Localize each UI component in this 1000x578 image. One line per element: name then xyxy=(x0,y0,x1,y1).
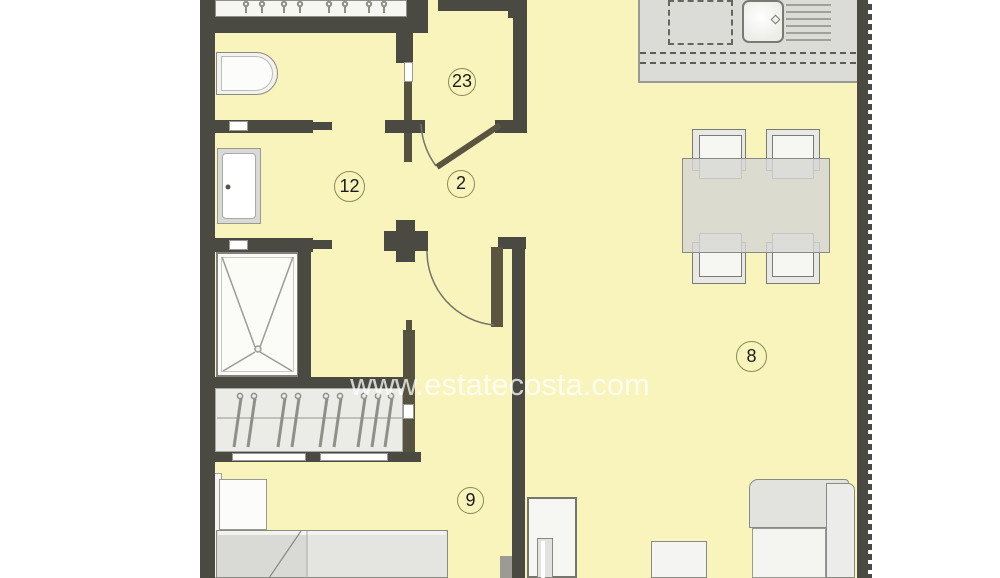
room-number: 12 xyxy=(339,177,359,195)
tall-cabinet-highlight xyxy=(541,541,545,578)
sofa-chaise xyxy=(826,483,855,578)
wall-right xyxy=(857,0,872,578)
floor-plan: 23 12 2 8 9 www.estatecosta.com xyxy=(0,0,1000,578)
wall-cross-vertical xyxy=(396,220,415,262)
bed-blanket xyxy=(307,533,447,577)
wall-kitchen-left xyxy=(513,0,527,133)
door-jamb-bedroom-sliding xyxy=(403,404,414,419)
wardrobe-top xyxy=(215,0,407,17)
counter-edge-dashed-1 xyxy=(640,52,856,54)
sofa-seat xyxy=(752,528,826,578)
room-number: 2 xyxy=(456,174,466,192)
side-table xyxy=(651,541,707,578)
watermark-text: www.estatecosta.com xyxy=(320,367,680,403)
door-jamb-dressing-bottom xyxy=(229,240,248,250)
bed-sheet-strip xyxy=(218,531,446,535)
room-label-8: 8 xyxy=(736,341,767,372)
wall-dressing-bottom-tail xyxy=(313,240,332,249)
bathtub-rim xyxy=(221,56,273,91)
closet-opening-left xyxy=(232,453,306,461)
room-label-23: 23 xyxy=(448,68,476,96)
room-number: 23 xyxy=(452,72,472,90)
dining-table xyxy=(682,158,830,253)
door-jamb-bath-bottom xyxy=(229,121,248,131)
wall-left xyxy=(200,0,215,578)
tall-cabinet-shelf xyxy=(537,538,553,578)
wall-bath-bottom-tail xyxy=(313,122,332,130)
wall-hall-bottom-right-stub xyxy=(495,120,527,133)
nightstand xyxy=(219,479,267,530)
room-label-2: 2 xyxy=(447,170,475,198)
bathroom-cabinet-door xyxy=(222,153,256,219)
wall-dressing-bottom xyxy=(203,238,313,252)
wall-top-band xyxy=(200,17,428,33)
wall-bath-bottom xyxy=(203,120,313,133)
wall-shower-right xyxy=(298,252,311,378)
doorway-stub-bottom xyxy=(500,556,512,578)
room-number: 8 xyxy=(746,347,756,365)
door-leaf-living xyxy=(491,247,503,327)
room-number: 9 xyxy=(465,491,475,509)
wall-bath-right xyxy=(396,33,413,63)
counter-edge-dashed-2 xyxy=(640,62,856,64)
closet-opening-right xyxy=(320,453,388,461)
door-jamb-bath-sliding xyxy=(404,62,413,82)
wall-top-vertical xyxy=(407,0,428,17)
shower-tray-rim xyxy=(221,257,294,372)
wall-living-vertical xyxy=(512,237,525,578)
wall-hall-bottom-left-stub xyxy=(385,120,425,133)
kitchen-hob-dashed xyxy=(668,0,733,45)
room-label-12: 12 xyxy=(334,171,365,202)
room-label-9: 9 xyxy=(457,487,484,514)
wall-right-notches xyxy=(868,0,873,578)
